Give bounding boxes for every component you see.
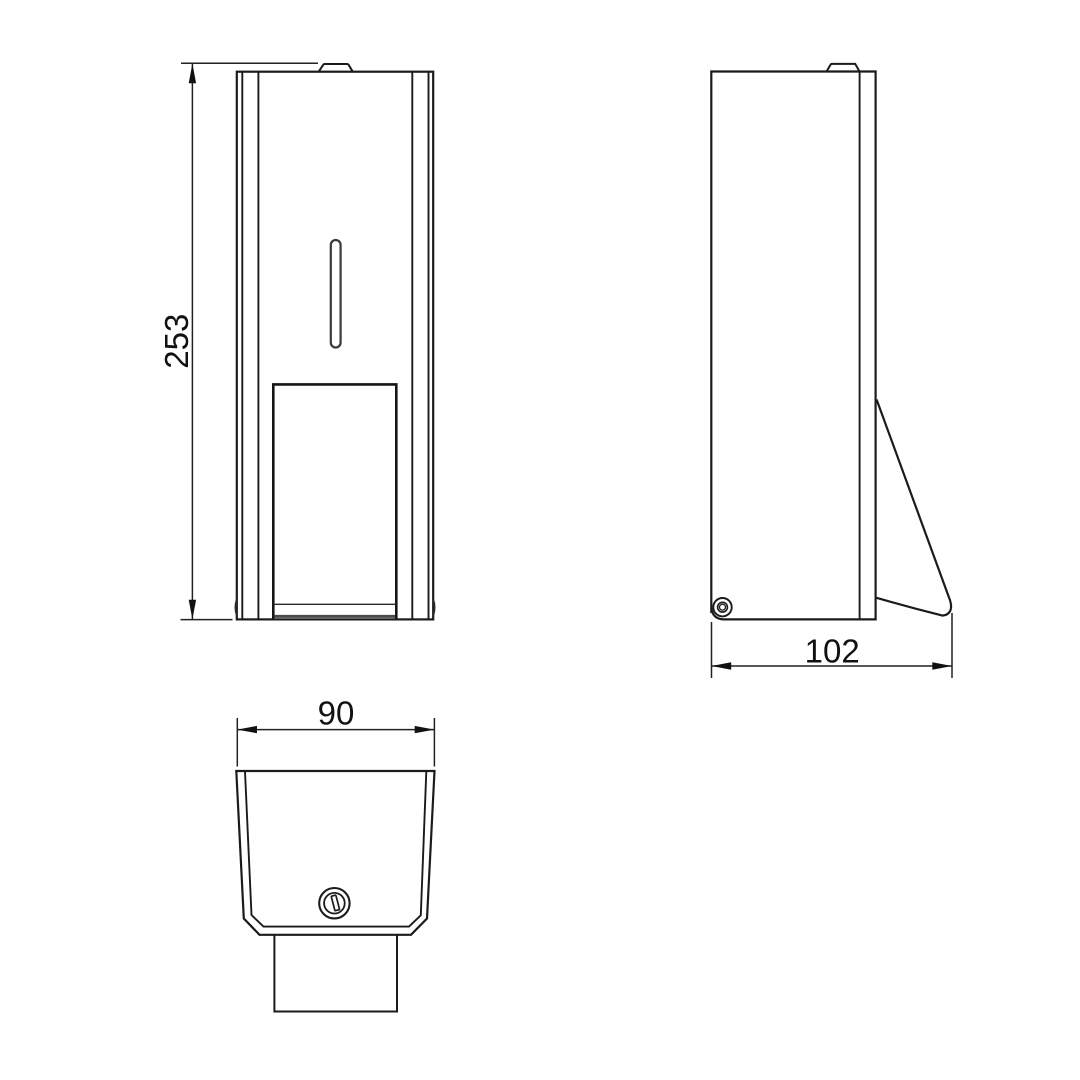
svg-text:102: 102 (805, 632, 860, 669)
svg-text:253: 253 (158, 314, 195, 369)
svg-text:90: 90 (318, 694, 355, 731)
